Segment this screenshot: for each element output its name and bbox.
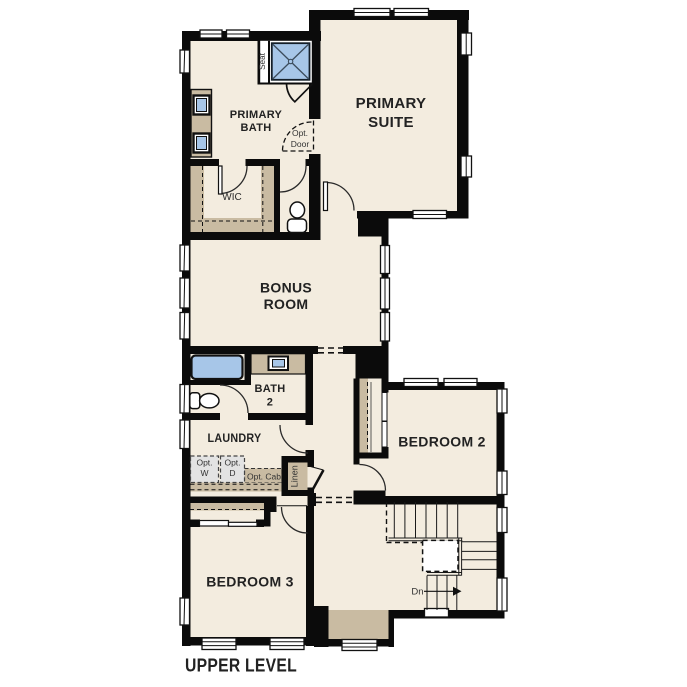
svg-text:UPPER LEVEL: UPPER LEVEL [185, 656, 297, 676]
svg-text:Linen: Linen [290, 465, 300, 487]
svg-text:BATH: BATH [241, 122, 272, 134]
svg-text:Opt.: Opt. [224, 458, 240, 468]
svg-text:PRIMARY: PRIMARY [356, 95, 427, 112]
svg-text:Dn: Dn [411, 587, 423, 598]
svg-text:Opt.: Opt. [292, 128, 308, 138]
svg-text:WIC: WIC [222, 192, 241, 203]
svg-text:SUITE: SUITE [368, 114, 414, 131]
svg-text:2: 2 [267, 397, 273, 409]
svg-text:BEDROOM 2: BEDROOM 2 [398, 434, 486, 450]
svg-text:BATH: BATH [255, 383, 286, 395]
svg-text:Seat: Seat [258, 52, 267, 70]
svg-text:ROOM: ROOM [264, 296, 309, 312]
svg-text:BONUS: BONUS [260, 280, 312, 296]
svg-text:BEDROOM 3: BEDROOM 3 [206, 574, 294, 590]
svg-text:D: D [229, 468, 235, 478]
svg-text:Opt.: Opt. [196, 458, 212, 468]
svg-text:W: W [200, 468, 208, 478]
svg-text:Opt. Cab: Opt. Cab [247, 472, 281, 482]
svg-text:Door: Door [291, 139, 310, 149]
svg-text:PRIMARY: PRIMARY [230, 109, 283, 121]
svg-text:LAUNDRY: LAUNDRY [208, 431, 262, 445]
